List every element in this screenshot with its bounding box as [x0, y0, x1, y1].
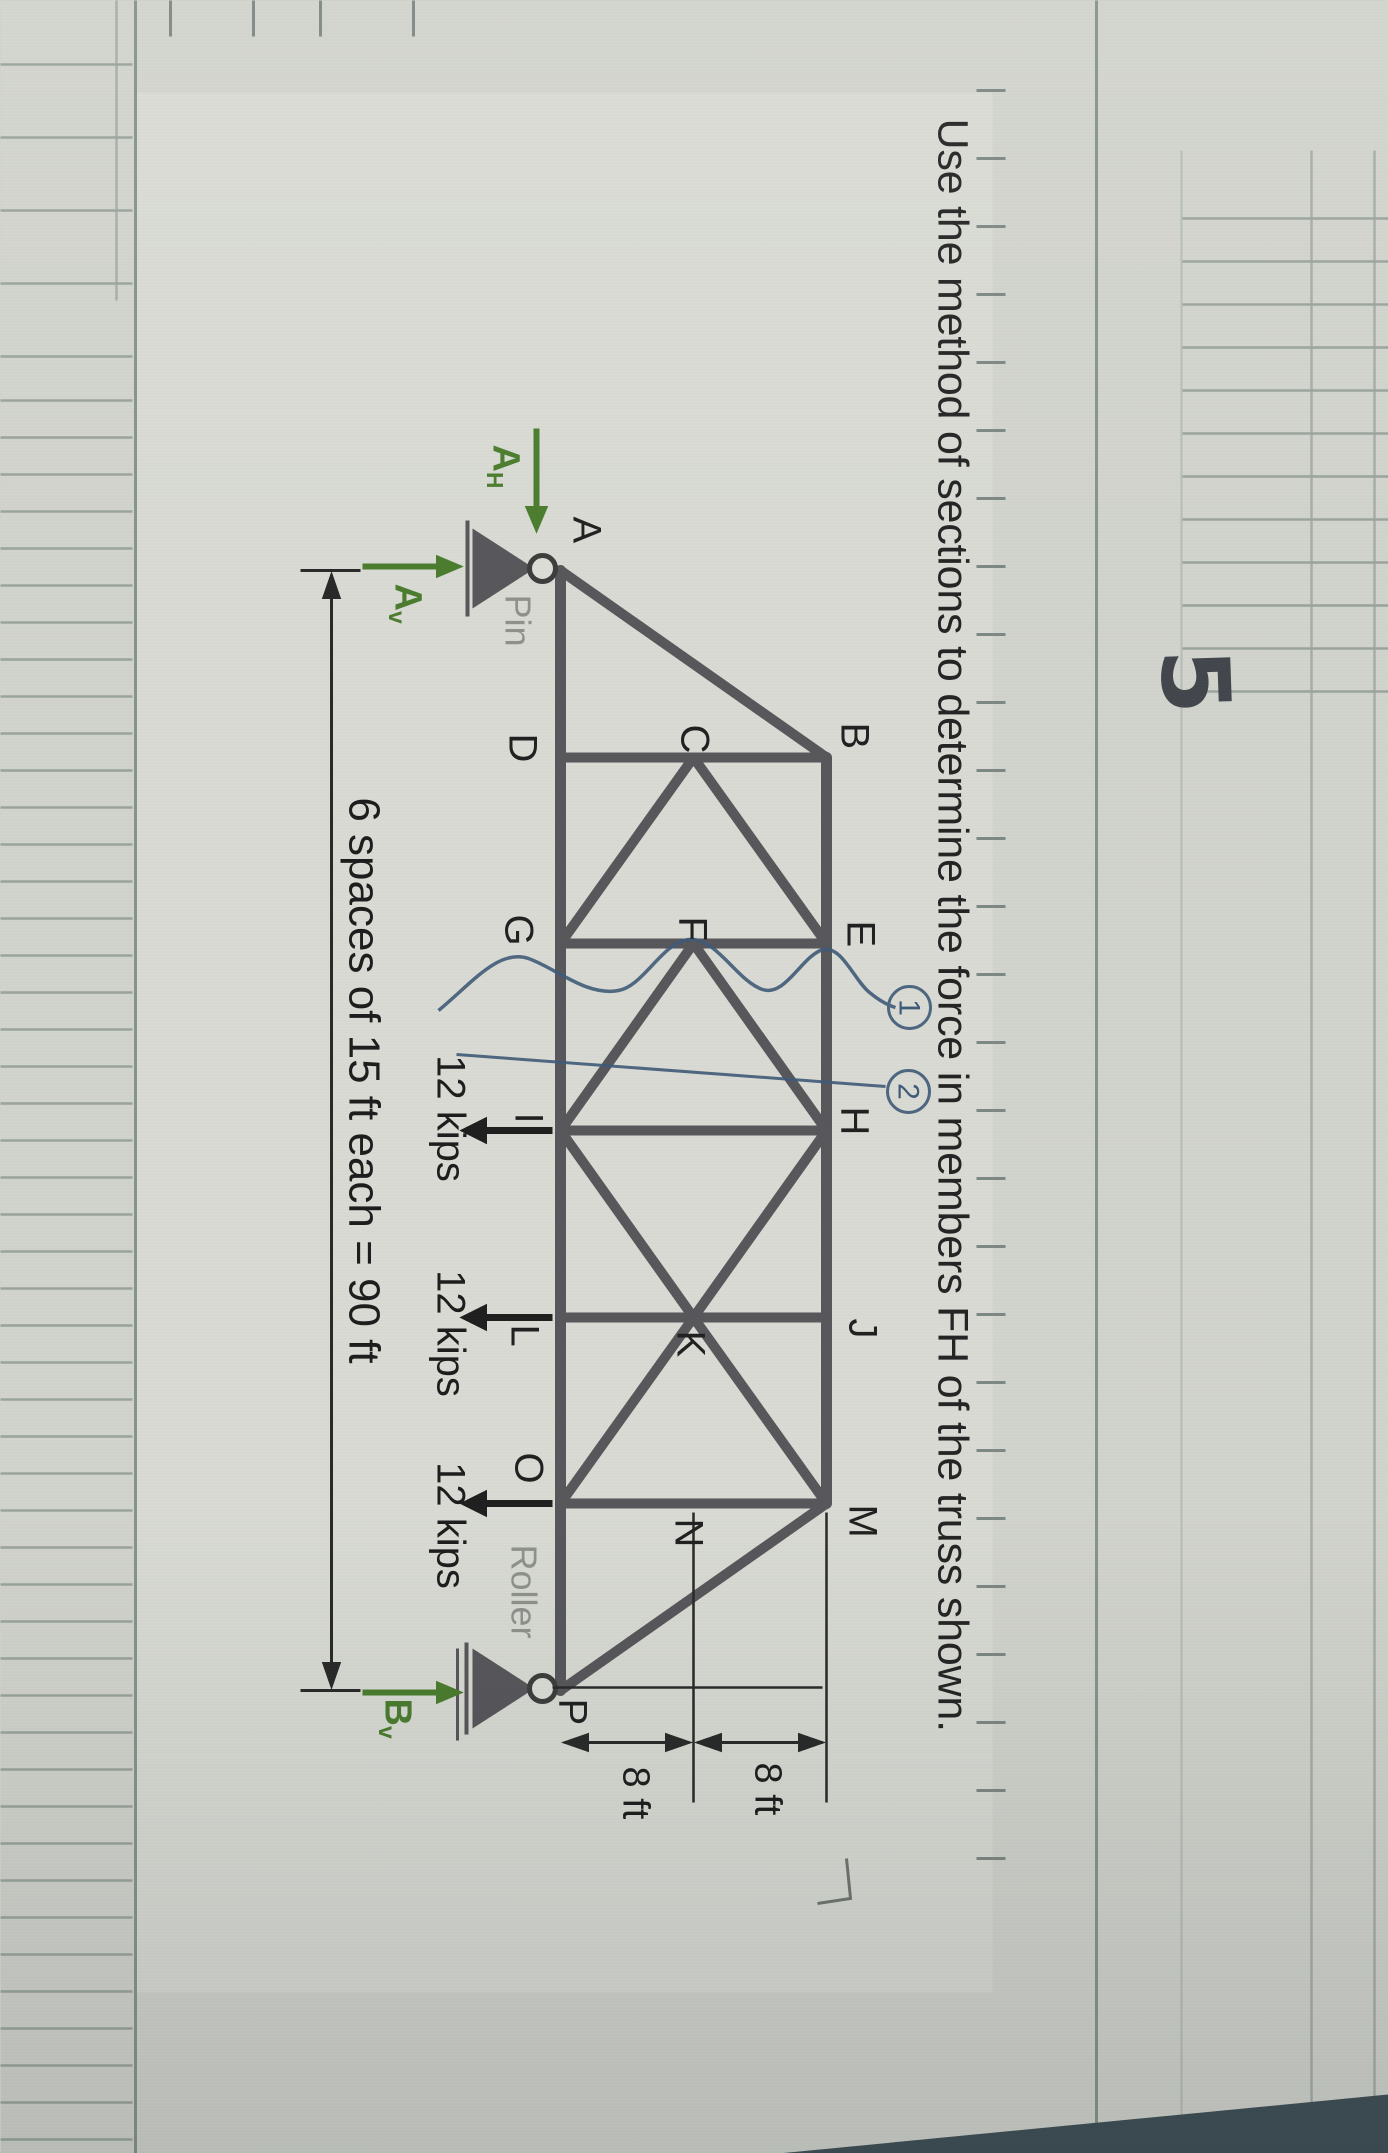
rotated-page-content: 5 Use the method of sections to determin… — [0, 0, 1388, 2153]
photo-of-homework-sheet: 5 Use the method of sections to determin… — [0, 0, 1388, 2153]
photo-lighting-overlay — [0, 0, 1388, 2153]
